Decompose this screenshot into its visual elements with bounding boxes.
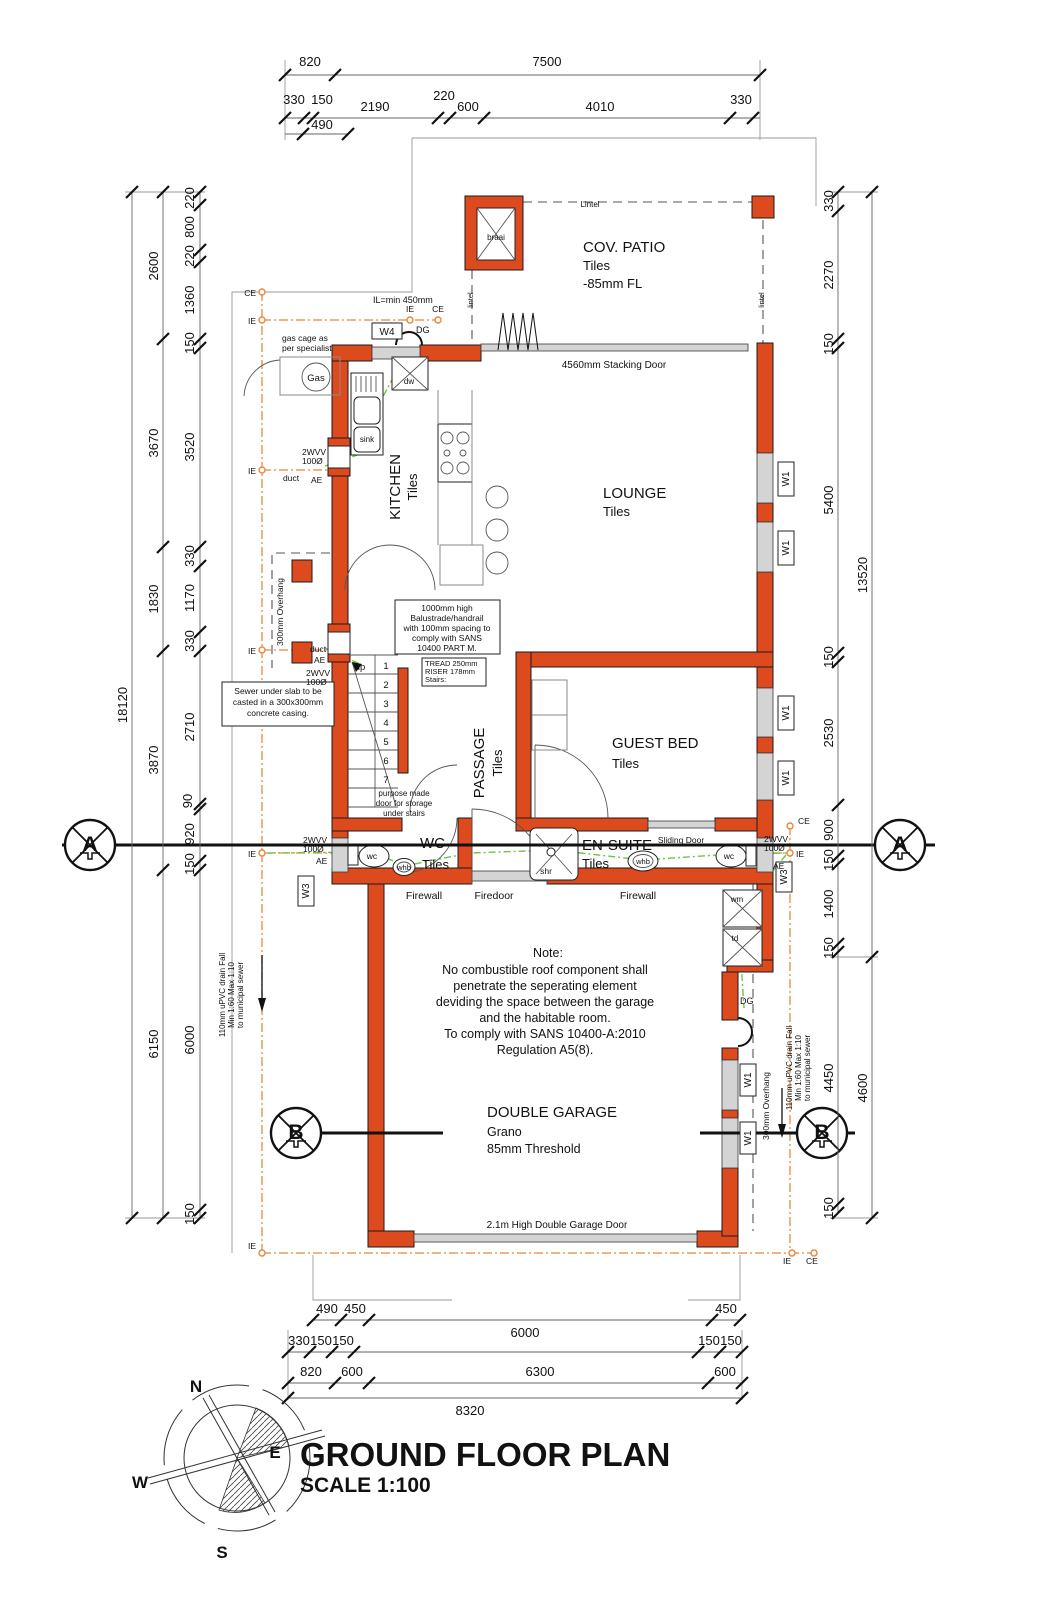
section-letter: B	[288, 1121, 303, 1144]
room-finish-kitchen: Tiles	[405, 473, 420, 500]
wc-fixture-label: wc	[366, 851, 378, 861]
dim: 3520	[182, 433, 197, 462]
dim: 150	[311, 92, 333, 107]
dg-tag: DG	[416, 325, 430, 335]
note-il: IL=min 450mm	[373, 295, 433, 305]
note-sewer: casted in a 300x300mm	[233, 697, 323, 707]
section-letter: A	[82, 833, 97, 856]
lintel-label-small: lintel	[466, 292, 475, 308]
dw-label: dw	[404, 377, 414, 386]
dim: 150	[332, 1333, 354, 1348]
walls	[292, 196, 774, 1247]
dim: 800	[182, 216, 197, 238]
dim: 6000	[511, 1325, 540, 1340]
dim: 6000	[182, 1026, 197, 1055]
dim: 150	[821, 646, 836, 668]
dim: 4010	[586, 99, 615, 114]
room-finish-patio: Tiles	[583, 258, 610, 273]
wc-fixture-label: wc	[723, 851, 735, 861]
dim: 6300	[526, 1364, 555, 1379]
ce-tag: CE	[432, 304, 444, 314]
compass-e: E	[269, 1443, 280, 1462]
td-label: td	[732, 934, 739, 943]
dim: 600	[714, 1364, 736, 1379]
dim: 600	[457, 99, 479, 114]
room-finish-lounge: Tiles	[603, 504, 630, 519]
note-sewer: concrete casing.	[247, 708, 309, 718]
dim: 330	[288, 1333, 310, 1348]
dim: 150	[698, 1333, 720, 1348]
room-label-guest-bed: GUEST BED	[612, 735, 699, 752]
room-label-wc: WC	[420, 835, 445, 852]
stair-number: 7	[383, 775, 388, 786]
whb-label: whb	[635, 857, 650, 866]
fixtures	[280, 208, 762, 966]
room-level-patio: -85mm FL	[583, 276, 642, 291]
ie-tag: IE	[783, 1256, 791, 1266]
room-label-lounge: LOUNGE	[603, 485, 666, 502]
dim: 220	[433, 88, 455, 103]
dim: 330	[182, 630, 197, 652]
room-finish-passage: Tiles	[490, 749, 505, 776]
dim: 8320	[456, 1403, 485, 1418]
dim: 150	[310, 1333, 332, 1348]
sink-label: sink	[360, 435, 375, 444]
firewall-left-label: Firewall	[406, 890, 442, 902]
gas-label: Gas	[307, 373, 325, 384]
stair-number: 4	[383, 718, 388, 729]
note-garage: Regulation A5(8).	[497, 1043, 594, 1057]
ce-tag: CE	[798, 816, 810, 826]
dim: 490	[311, 117, 333, 132]
dim: 330	[182, 545, 197, 567]
up-label: up	[355, 662, 366, 673]
ae-tag: AE	[773, 861, 785, 871]
dim: 920	[182, 823, 197, 845]
dim: 1360	[182, 286, 197, 315]
dim: 2710	[182, 713, 197, 742]
ie-tag: IE	[248, 1241, 256, 1251]
note-storage: under stairs	[383, 809, 425, 818]
note-garage: No combustible roof component shall	[442, 963, 648, 977]
dim: 450	[715, 1301, 737, 1316]
dim: 330	[821, 190, 836, 212]
section-letter: A	[892, 833, 907, 856]
note-garage-title: Note:	[533, 946, 563, 960]
drawing-title: GROUND FLOOR PLAN SCALE 1:100	[300, 1436, 670, 1497]
dim: 1400	[821, 890, 836, 919]
dim: 5400	[821, 486, 836, 515]
w4-tag: W4	[380, 327, 395, 338]
w1-tag: W1	[743, 1130, 754, 1145]
dim: 600	[341, 1364, 363, 1379]
dim: 7500	[533, 54, 562, 69]
braai-label: braai	[487, 233, 505, 242]
ie-tag: IE	[248, 466, 256, 476]
compass-s: S	[216, 1543, 227, 1562]
ce-tag: CE	[806, 1256, 818, 1266]
w1-tag: W1	[781, 471, 792, 486]
note-garage: penetrate the seperating element	[453, 979, 637, 993]
note-gas: per specialist	[282, 343, 332, 353]
ae-tag: AE	[314, 655, 326, 665]
note-stairs: Stairs:	[425, 675, 446, 684]
ce-tag: CE	[244, 288, 256, 298]
dim: 150	[182, 1203, 197, 1225]
note-balustrade: 1000mm high	[421, 603, 473, 613]
ie-tag: IE	[406, 304, 414, 314]
lintel-label: Lintel	[580, 200, 599, 209]
page-title: GROUND FLOOR PLAN	[300, 1436, 670, 1473]
stacking-door-label: 4560mm Stacking Door	[562, 360, 667, 371]
dim: 3870	[146, 746, 161, 775]
ae-tag: AE	[316, 856, 328, 866]
stair-number: 5	[383, 737, 388, 748]
dg-tag: DG	[740, 996, 754, 1006]
compass-w: W	[132, 1473, 149, 1492]
dim: 2600	[146, 252, 161, 281]
note-storage: door for storage	[376, 799, 433, 808]
note-overhang-right: 300mm Overhang	[761, 1072, 771, 1140]
room-label-ensuite: EN-SUITE	[582, 837, 652, 854]
note-garage: deviding the space between the garage	[436, 995, 654, 1009]
ie-tag: IE	[796, 849, 804, 859]
section-marker-b-left: B	[271, 1108, 321, 1158]
shr-label: shr	[540, 866, 552, 876]
dim: 150	[821, 1197, 836, 1219]
dim: 18120	[115, 687, 130, 723]
dim: 2270	[821, 261, 836, 290]
note-drain-left: Min 1:60 Max 1:10	[227, 962, 236, 1028]
w1-tag: W1	[781, 540, 792, 555]
note-sewer: Sewer under slab to be	[234, 686, 322, 696]
dim: 2530	[821, 719, 836, 748]
w1-tag: W1	[781, 770, 792, 785]
duct-tag: duct	[310, 644, 327, 654]
stair-number: 1	[383, 661, 388, 672]
room-finish-garage: Grano	[487, 1125, 522, 1139]
room-finish-wc: Tiles	[422, 857, 449, 872]
ie-tag: IE	[248, 849, 256, 859]
wvv-dia-tag: 100Ø	[764, 843, 785, 853]
dim: 150	[821, 333, 836, 355]
wvv-dia-tag: 100Ø	[302, 456, 323, 466]
note-drain-right: 110mm uPVC drain Fall	[785, 1026, 794, 1111]
w1-tag: W1	[781, 705, 792, 720]
room-finish-guest-bed: Tiles	[612, 756, 639, 771]
w3-tag: W3	[301, 883, 312, 898]
dim: 220	[182, 245, 197, 267]
dim: 6150	[146, 1030, 161, 1059]
dim: 2190	[361, 99, 390, 114]
room-finish-ensuite: Tiles	[582, 856, 609, 871]
firedoor-label: Firedoor	[474, 890, 514, 902]
dim: 330	[283, 92, 305, 107]
section-marker-a-left: A	[65, 820, 115, 870]
duct-tag: duct	[283, 473, 300, 483]
stair-number: 2	[383, 680, 388, 691]
room-label-patio: COV. PATIO	[583, 239, 665, 256]
dim: 150	[821, 937, 836, 959]
note-drain-right: Min 1:60 Max 1:10	[794, 1035, 803, 1101]
w1-tag: W1	[743, 1072, 754, 1087]
dim: 820	[299, 54, 321, 69]
compass-n: N	[190, 1377, 202, 1396]
dim: 1170	[182, 584, 197, 612]
firewall-right-label: Firewall	[620, 890, 656, 902]
wm-label: wm	[730, 895, 744, 904]
garage-door-label: 2.1m High Double Garage Door	[487, 1220, 628, 1231]
page-scale: SCALE 1:100	[300, 1474, 431, 1497]
note-garage: To comply with SANS 10400-A:2010	[444, 1027, 646, 1041]
stair-number: 6	[383, 756, 388, 767]
note-balustrade: Balustrade/handrail	[410, 613, 483, 623]
dim: 220	[182, 187, 197, 209]
note-drain-left: 110mm uPVC drain Fall	[218, 953, 227, 1038]
dim: 150	[182, 853, 197, 875]
dim: 4450	[821, 1064, 836, 1093]
room-label-passage: PASSAGE	[471, 728, 488, 799]
dim: 150	[182, 332, 197, 354]
dim: 150	[720, 1333, 742, 1348]
dim: 13520	[855, 557, 870, 593]
wvv-dia-tag: 100Ø	[306, 677, 327, 687]
floor-plan-canvas: A A B B 820	[0, 0, 1063, 1600]
section-marker-b-right: B	[797, 1108, 847, 1158]
note-gas: gas cage as	[282, 333, 328, 343]
compass-rose: N E W S	[132, 1377, 325, 1562]
ie-tag: IE	[248, 646, 256, 656]
note-balustrade: with 100mm spacing to	[403, 623, 491, 633]
whb-label: whb	[396, 863, 411, 872]
sliding-door-label: Sliding Door	[658, 835, 704, 845]
wvv-dia-tag: 100Ø	[303, 844, 324, 854]
dim: 3670	[146, 429, 161, 458]
room-label-kitchen: KITCHEN	[387, 454, 404, 520]
note-drain-left: to municipal sewer	[236, 962, 245, 1029]
section-letter: B	[814, 1121, 829, 1144]
stair-number: 3	[383, 699, 388, 710]
room-label-garage: DOUBLE GARAGE	[487, 1104, 617, 1121]
note-garage: and the habitable room.	[479, 1011, 610, 1025]
dim: 330	[730, 92, 752, 107]
ie-tag: IE	[248, 316, 256, 326]
note-overhang-left: 300mm Overhang	[275, 578, 285, 646]
note-balustrade: comply with SANS	[412, 633, 482, 643]
dim: 490	[316, 1301, 338, 1316]
section-marker-a-right: A	[875, 820, 925, 870]
ae-tag: AE	[311, 475, 323, 485]
dim: 820	[300, 1364, 322, 1379]
note-drain-right: to municipal sewer	[803, 1035, 812, 1102]
dim: 900	[821, 819, 836, 841]
dim: 450	[344, 1301, 366, 1316]
dim: 1830	[146, 585, 161, 614]
dim: 150	[821, 849, 836, 871]
dim: 90	[180, 794, 195, 808]
lintel-label-small: lintel	[757, 292, 766, 308]
note-storage: purpose made	[378, 789, 430, 798]
w3-tag: W3	[779, 869, 790, 884]
dim: 4600	[855, 1074, 870, 1103]
note-balustrade: 10400 PART M.	[417, 643, 477, 653]
room-threshold-garage: 85mm Threshold	[487, 1142, 581, 1156]
